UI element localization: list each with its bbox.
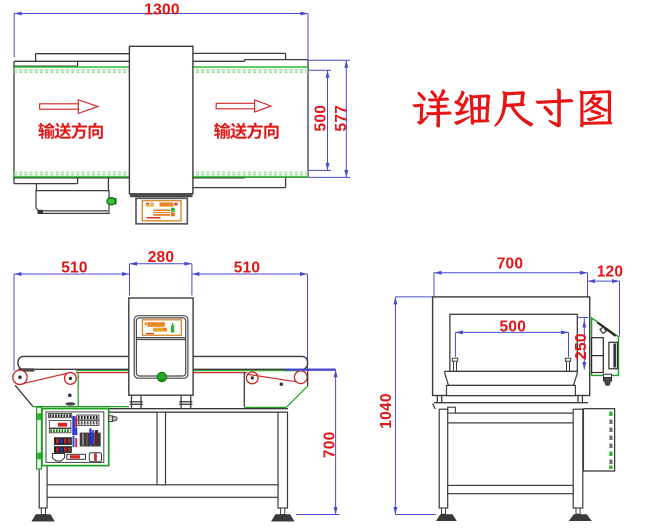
svg-text:1040: 1040 [378, 393, 395, 428]
svg-text:577: 577 [333, 105, 350, 132]
svg-text:120: 120 [597, 263, 624, 280]
svg-text:700: 700 [321, 431, 338, 458]
svg-text:700: 700 [497, 255, 524, 272]
svg-text:250: 250 [573, 333, 590, 360]
svg-text:1300: 1300 [144, 2, 179, 19]
svg-text:500: 500 [313, 105, 330, 132]
